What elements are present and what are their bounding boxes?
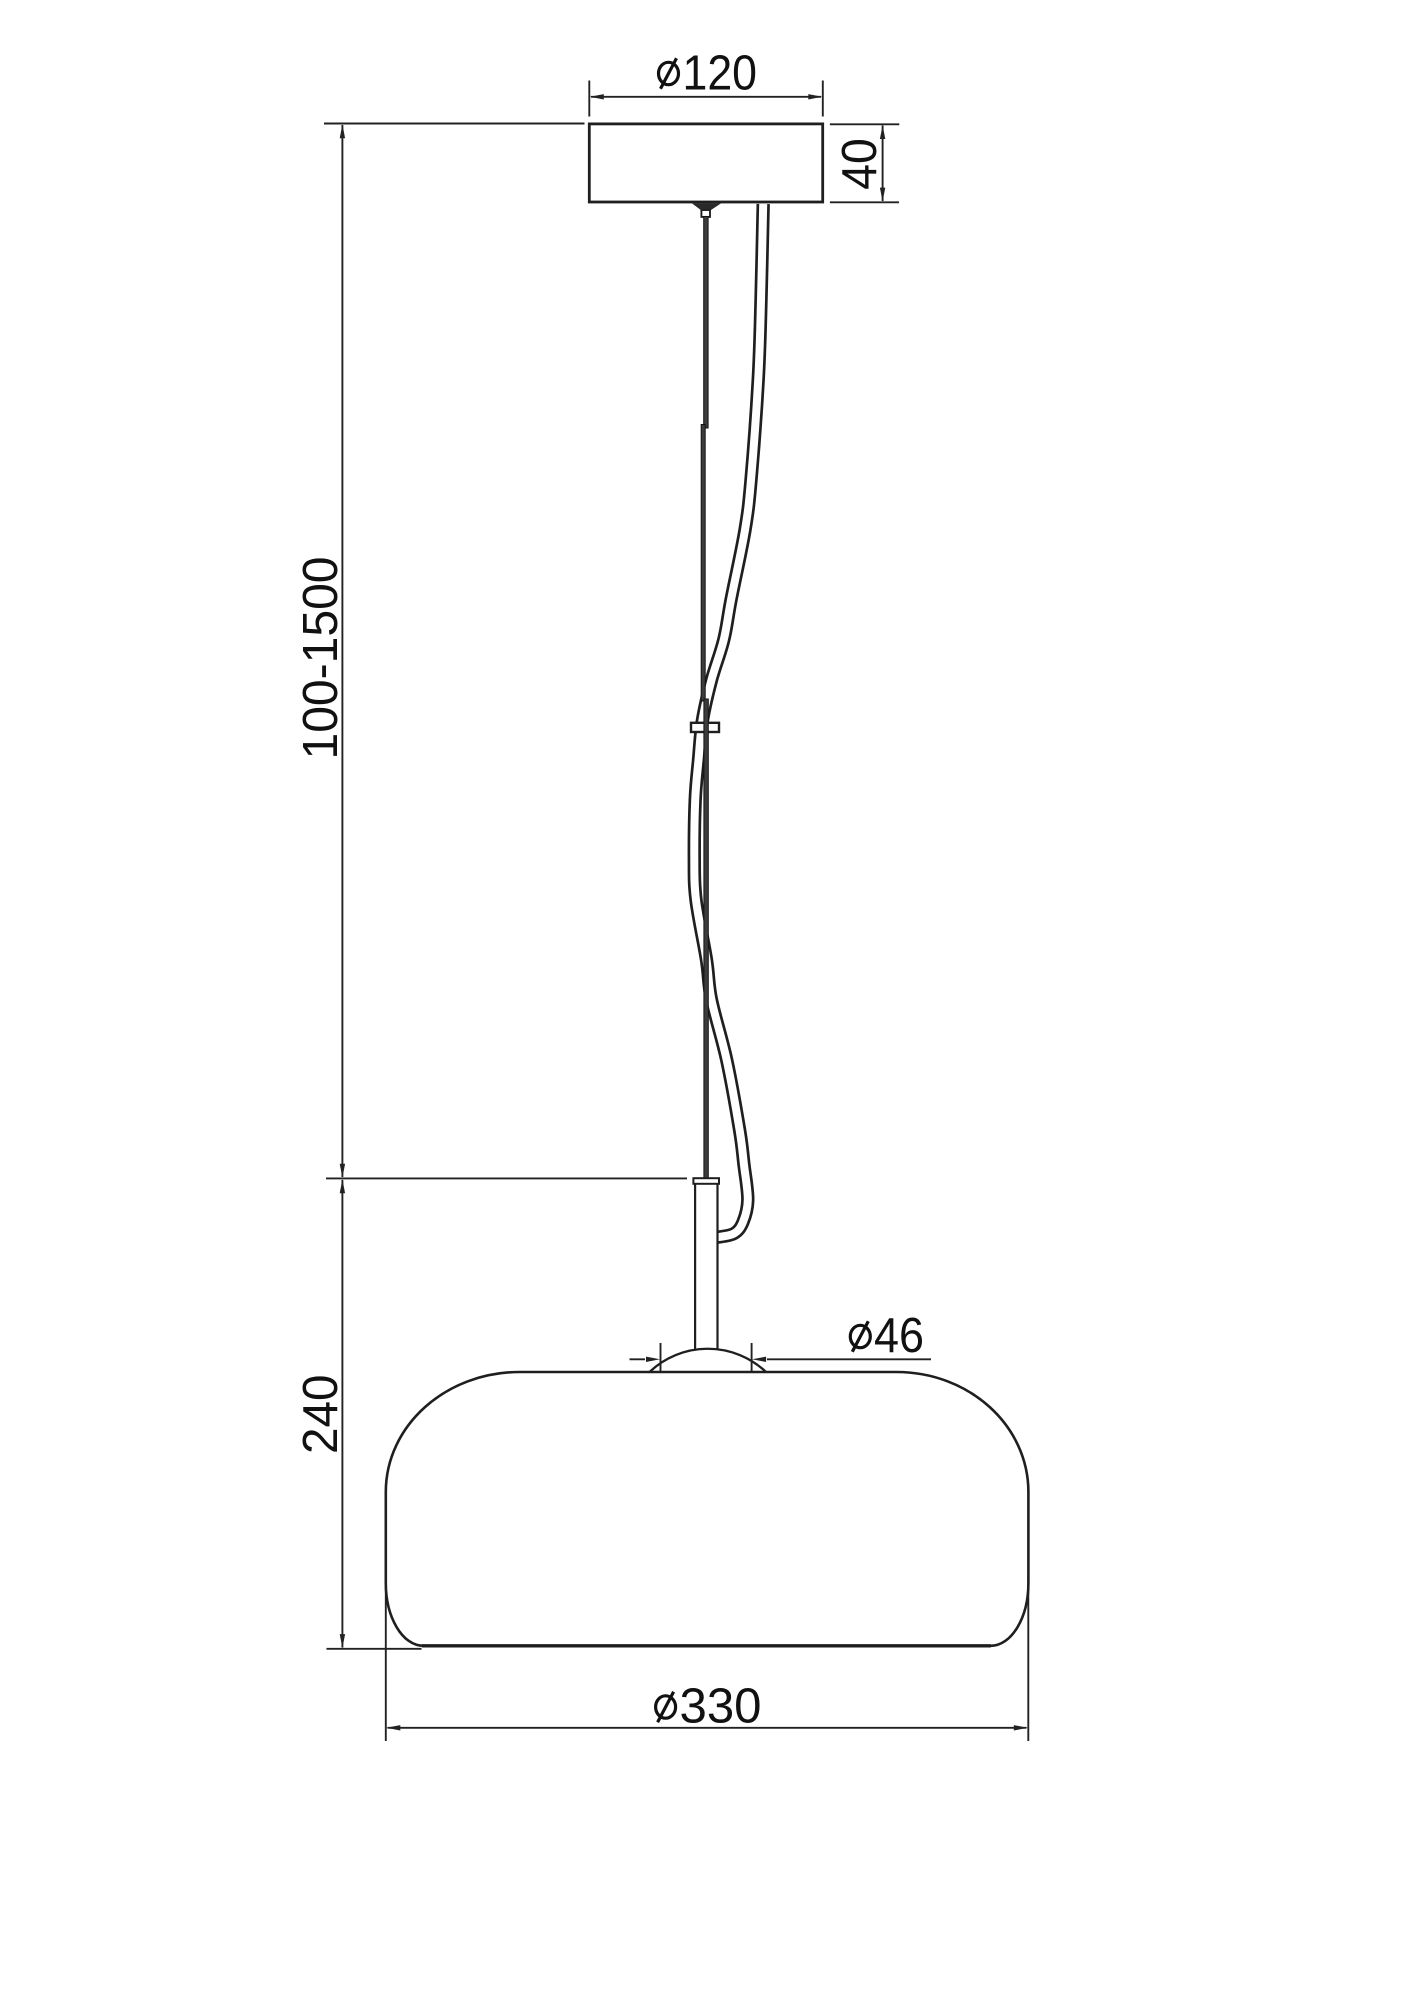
svg-text:120: 120 [683,45,758,100]
svg-text:100-1500: 100-1500 [293,557,348,760]
svg-text:240: 240 [293,1375,348,1455]
svg-text:46: 46 [874,1308,924,1363]
svg-text:330: 330 [680,1679,762,1734]
svg-text:40: 40 [832,138,887,190]
